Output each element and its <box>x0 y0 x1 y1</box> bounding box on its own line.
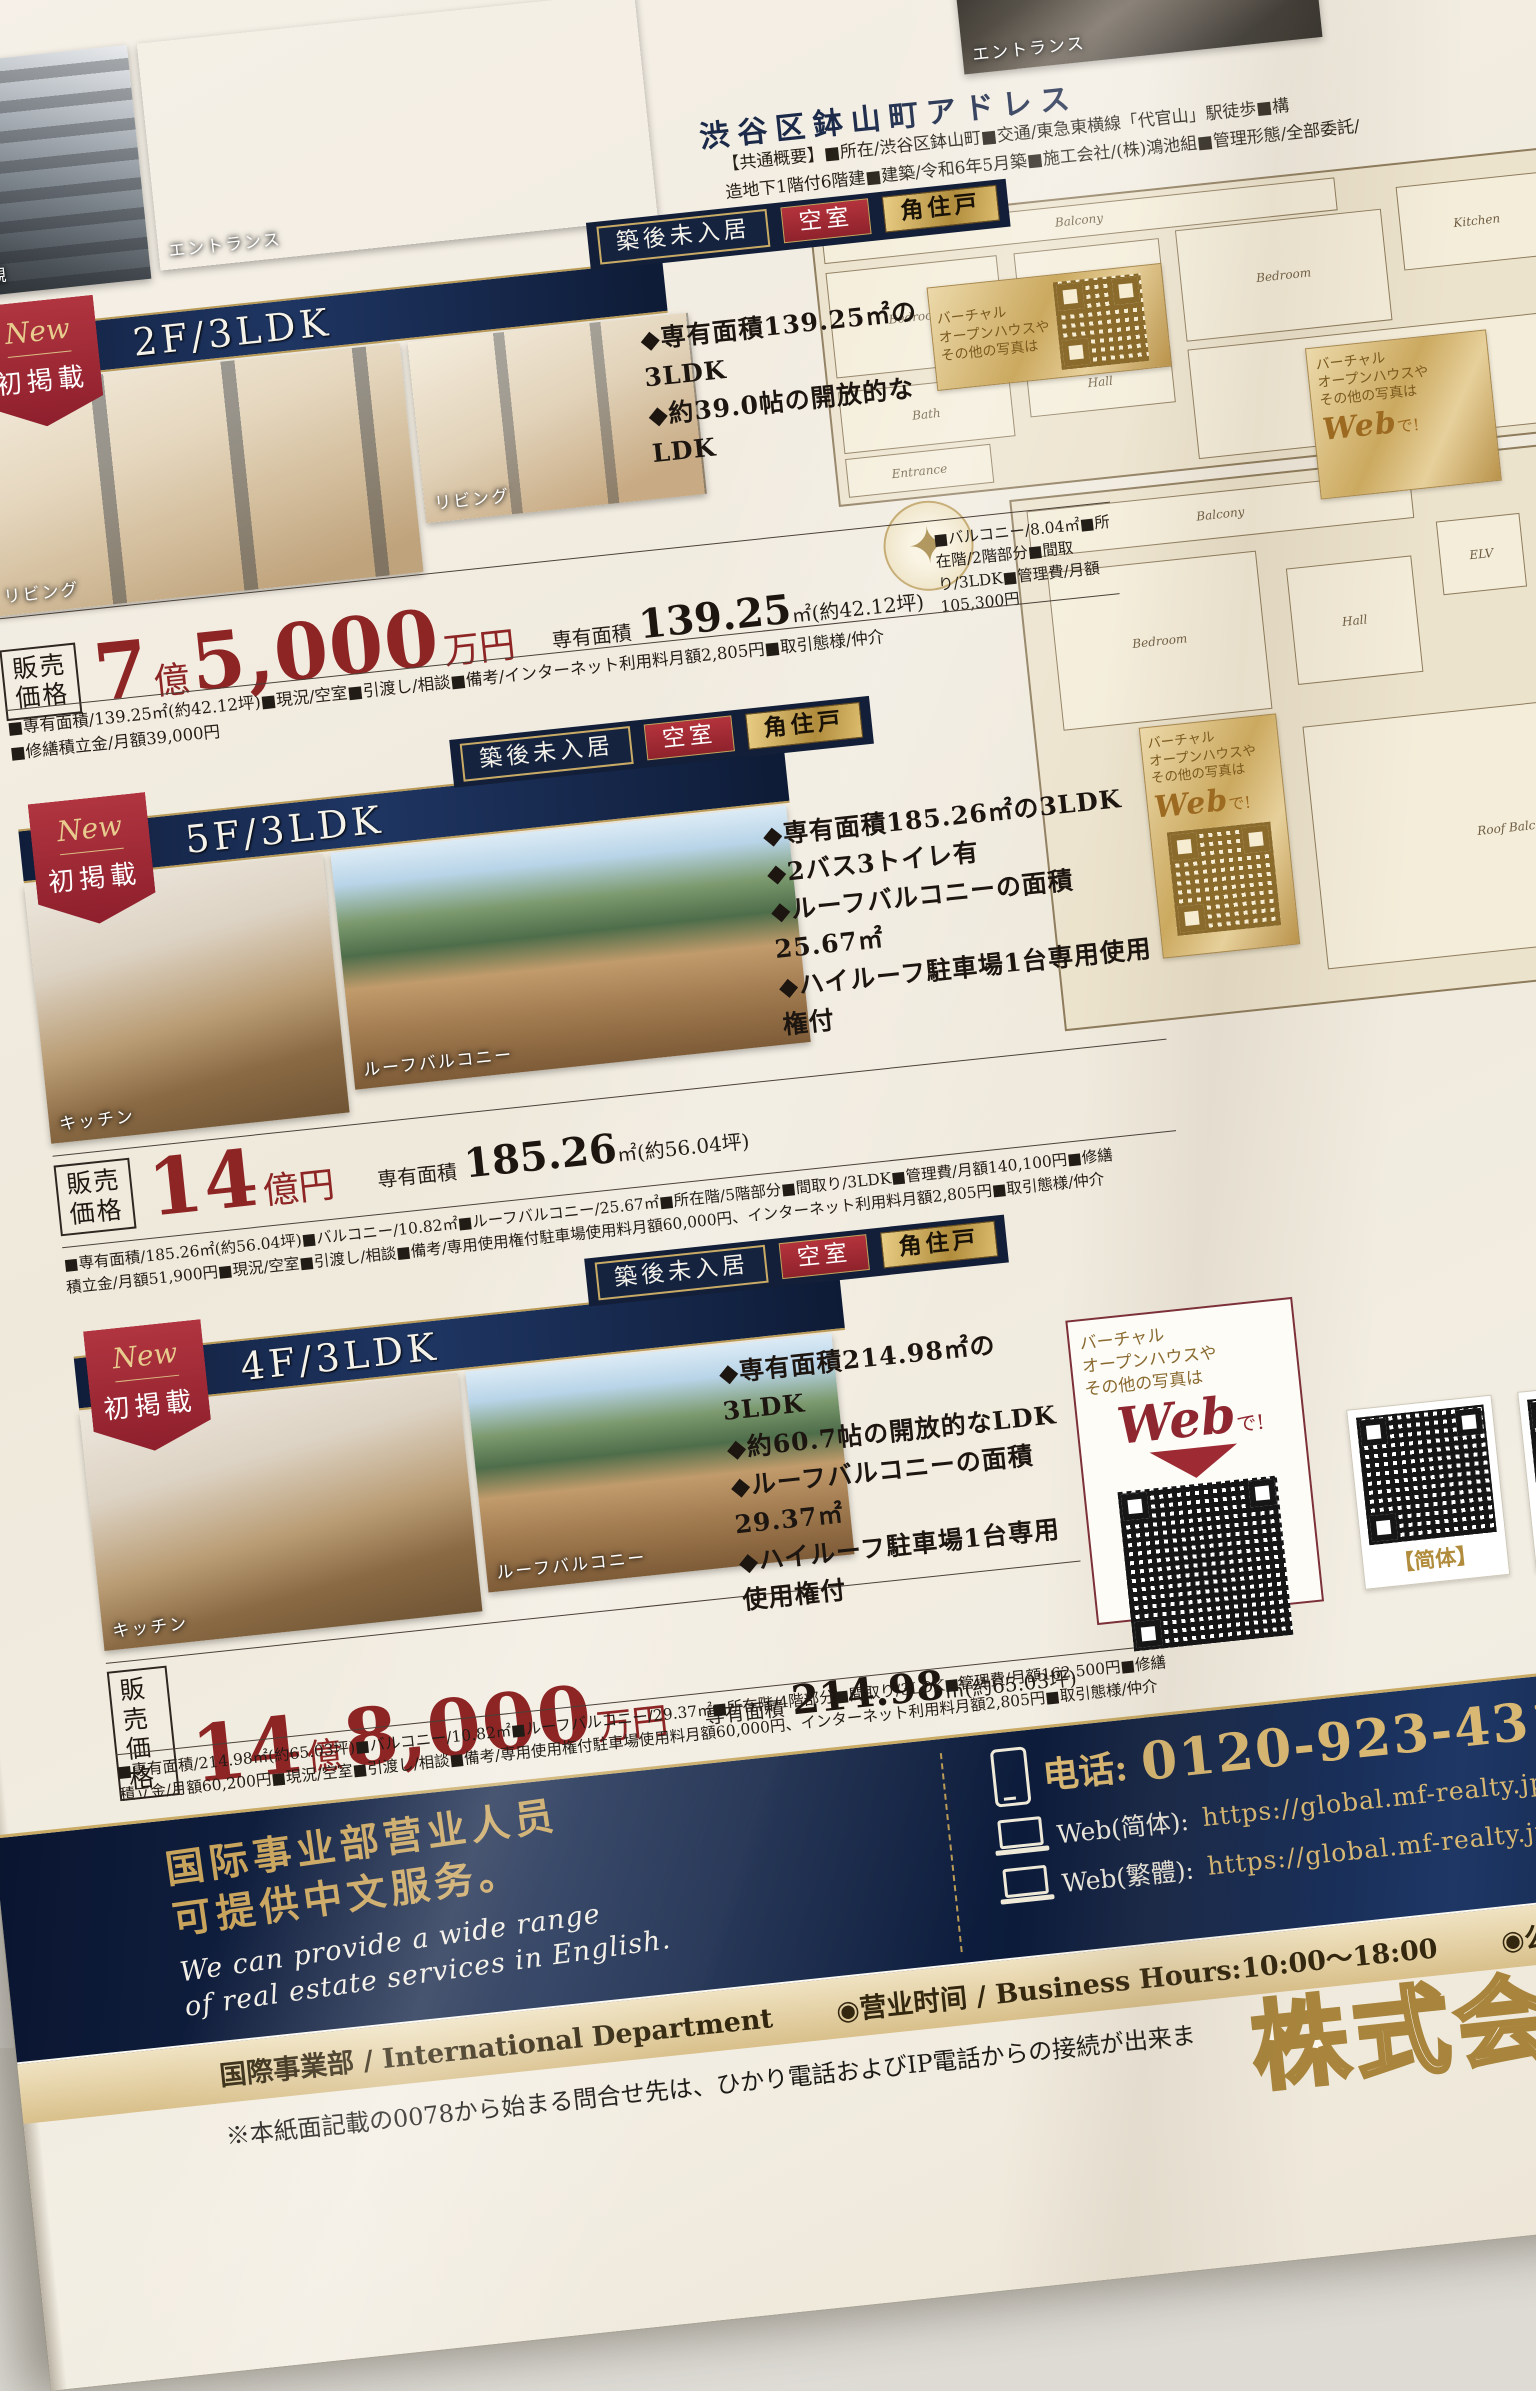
web-badge-gold: バーチャル オープンハウスや その他の写真は Webで! <box>1305 329 1502 499</box>
qr-code-icon <box>1356 1405 1497 1546</box>
chinese-service-block: 国际事业部营业人员 可提供中文服务。 We can provide a wide… <box>162 1777 673 2025</box>
plan-room: ELV <box>1436 512 1527 595</box>
badge-vacant: 空室 <box>779 1234 870 1279</box>
plan-room: Hall <box>1286 556 1423 685</box>
feature-list: ◆専有面積185.26㎡の3LDK ◆2バス3トイレ有 ◆ルーフバルコニーの面積… <box>761 779 1158 1045</box>
photo-roof-balcony: ルーフバルコニー <box>330 805 810 1090</box>
badge-corner-unit: 角住戸 <box>882 185 1000 233</box>
qr-code-icon <box>1167 821 1281 935</box>
qr-tile-traditional: 【繁體】 <box>1517 1377 1536 1572</box>
qr-code-icon <box>1117 1475 1293 1651</box>
web-badge-text: バーチャル オープンハウスや その他の写真は <box>936 299 1052 367</box>
photo-entrance: エントランス <box>949 0 1323 74</box>
plan-room: Roof Balcony <box>1303 685 1536 970</box>
web-badge-gold: バーチャル オープンハウスや その他の写真は Webで! <box>1139 713 1300 958</box>
mobile-phone-icon <box>990 1746 1032 1807</box>
web-badge-tile: バーチャル オープンハウスや その他の写真は Webで! <box>1065 1297 1324 1625</box>
price-label: 販売 価格 <box>54 1158 137 1237</box>
laptop-icon <box>1002 1865 1049 1898</box>
badge-vacant: 空室 <box>780 198 871 243</box>
flyer-paper: 外観 エントランス エントランス 渋谷区鉢山町アドレス 【共通概要】■所在/渋谷… <box>0 0 1536 2391</box>
plan-room: Kitchen <box>1395 171 1536 271</box>
qr-tile-simplified: 【简体】 <box>1346 1395 1510 1590</box>
feature-list: ◆専有面積139.25㎡の3LDK ◆約39.0帖の開放的なLDK <box>639 292 938 473</box>
photo-building-exterior: 外観 <box>0 45 151 299</box>
badge-vacant: 空室 <box>644 715 735 760</box>
price-value: 14億円 <box>145 1135 346 1227</box>
language-qr-tiles: 【简体】 【繁體】 <box>1346 1377 1536 1590</box>
laptop-icon <box>997 1816 1044 1849</box>
badge-corner-unit: 角住戸 <box>880 1221 998 1269</box>
plan-room: Bedroom <box>1175 209 1392 342</box>
feature-list: ◆専有面積214.98㎡の3LDK ◆約60.7帖の開放的なLDK ◆ルーフバル… <box>717 1320 1078 1620</box>
badge-corner-unit: 角住戸 <box>745 702 863 750</box>
qr-code-icon <box>1527 1387 1536 1528</box>
photo-label: エントランス <box>971 29 1087 66</box>
qr-code-icon <box>1053 273 1150 370</box>
dashed-divider <box>940 1753 963 1952</box>
